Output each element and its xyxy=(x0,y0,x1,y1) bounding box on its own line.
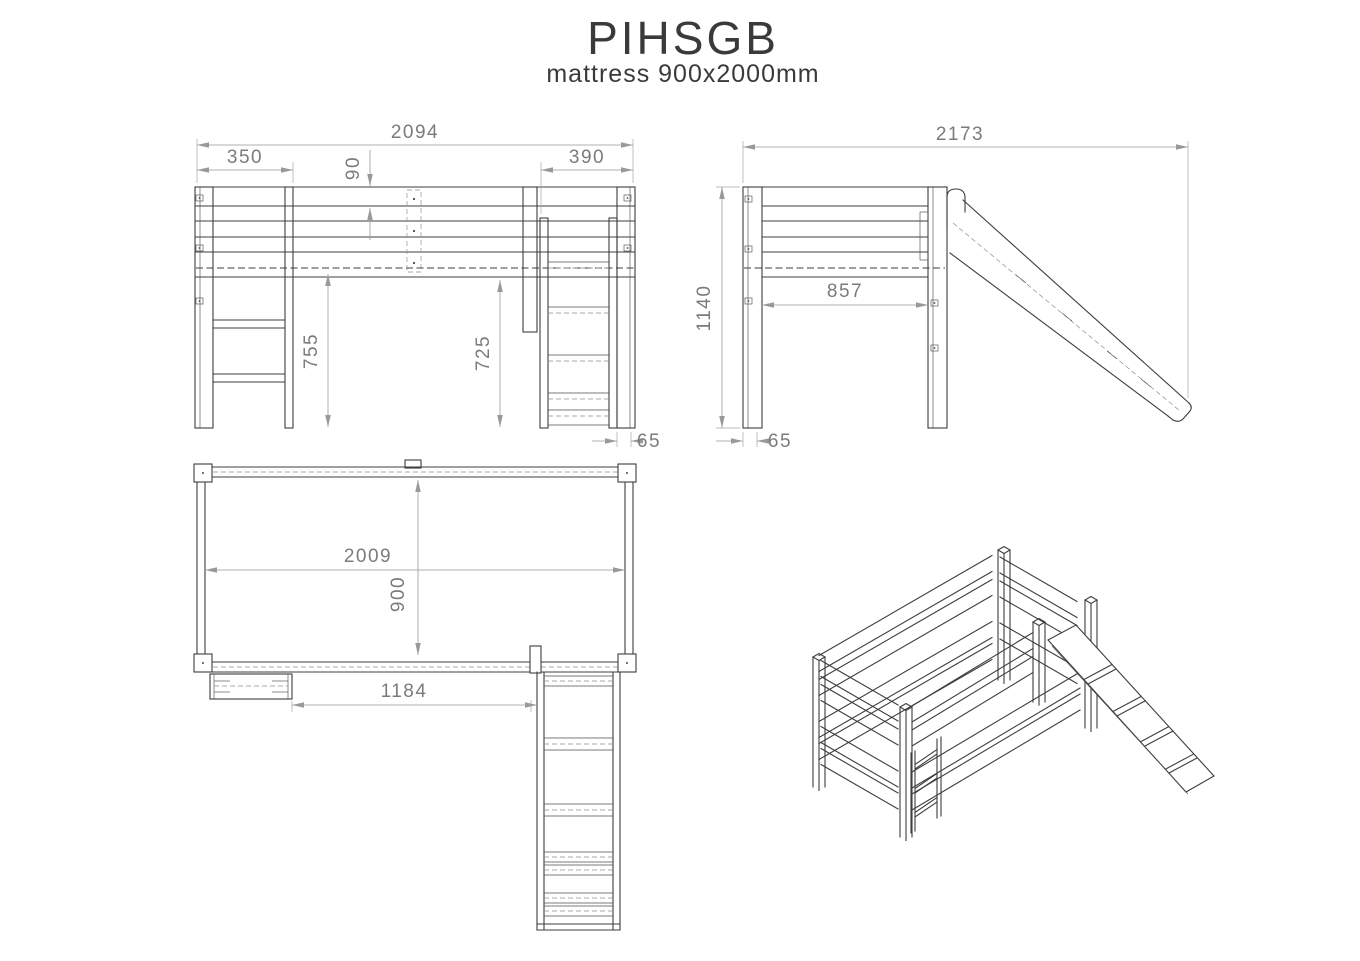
side-view: 2173 1140 857 65 xyxy=(694,124,1191,452)
title-block: PIHSGB mattress 900x2000mm xyxy=(546,12,819,88)
top-slide xyxy=(530,646,620,930)
dim-post-offset-side: 65 xyxy=(768,431,792,452)
top-dimensions: 2009 900 1184 xyxy=(205,480,625,712)
drawing-sheet: PIHSGB mattress 900x2000mm xyxy=(0,0,1360,961)
iso-posts xyxy=(813,547,1097,841)
dim-clearance-right: 725 xyxy=(473,335,494,371)
drawing-title: PIHSGB xyxy=(587,12,779,64)
dim-bed-length: 2009 xyxy=(344,546,392,567)
dim-slide-offset: 390 xyxy=(569,147,605,168)
dim-bed-width: 900 xyxy=(388,576,409,612)
dim-ladder-to-slide: 1184 xyxy=(381,681,428,702)
drawing-subtitle: mattress 900x2000mm xyxy=(546,60,819,88)
dim-clearance-left: 755 xyxy=(301,333,322,369)
top-ladder xyxy=(210,674,292,699)
front-bed-frame xyxy=(195,187,635,428)
side-dimensions: 2173 1140 857 65 xyxy=(694,124,1188,452)
front-slide-end xyxy=(523,187,617,428)
side-bed-frame xyxy=(743,187,947,428)
dim-rail-height: 90 xyxy=(343,156,364,180)
iso-slide xyxy=(1048,625,1214,794)
iso-ladder xyxy=(911,737,941,833)
top-bed-frame xyxy=(194,460,636,672)
dim-inner-depth: 857 xyxy=(827,281,863,302)
dim-ladder-offset: 350 xyxy=(227,147,263,168)
dim-side-offset-front: 65 xyxy=(637,431,661,452)
technical-drawing: PIHSGB mattress 900x2000mm xyxy=(0,0,1360,961)
dim-overall-depth: 2173 xyxy=(936,124,984,145)
dim-total-height: 1140 xyxy=(694,285,715,332)
side-slide xyxy=(947,189,1191,421)
front-ladder xyxy=(213,187,293,428)
front-fittings xyxy=(196,195,631,304)
side-fittings xyxy=(745,196,938,351)
top-view: 2009 900 1184 xyxy=(194,460,636,930)
isometric-view xyxy=(813,547,1214,841)
dim-overall-width: 2094 xyxy=(391,122,439,143)
front-dimensions: 2094 350 390 90 755 725 65 xyxy=(197,122,661,452)
front-view: 2094 350 390 90 755 725 65 xyxy=(195,122,661,452)
